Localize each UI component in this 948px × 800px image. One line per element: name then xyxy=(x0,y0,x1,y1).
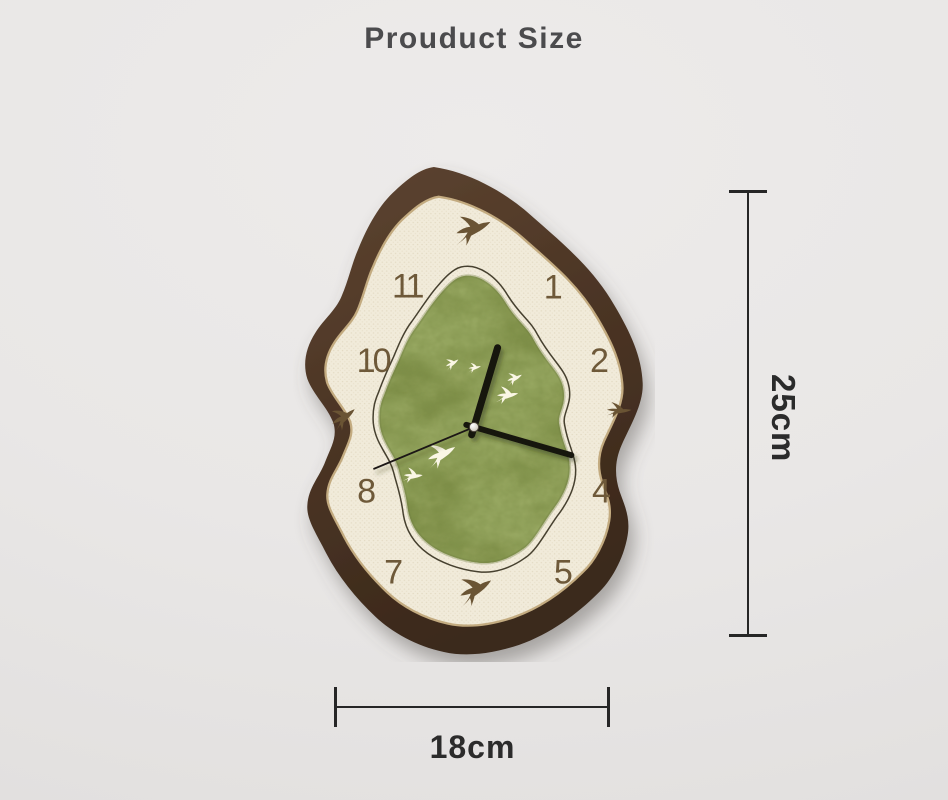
center-cap xyxy=(469,422,478,431)
clock-numeral-10: 10 xyxy=(357,342,391,380)
width-dimension-label: 18cm xyxy=(330,729,615,766)
clock-numeral-2: 2 xyxy=(590,342,609,380)
height-dimension-line xyxy=(747,192,749,636)
clock-numeral-8: 8 xyxy=(357,472,376,510)
width-dimension-cap-right xyxy=(607,687,610,727)
clock-numeral-5: 5 xyxy=(554,554,573,592)
clock-numeral-7: 7 xyxy=(384,554,403,592)
height-dimension-cap-top xyxy=(729,190,767,193)
width-dimension-cap-left xyxy=(334,687,337,727)
clock-numeral-4: 4 xyxy=(592,472,611,510)
wall-clock-image: 11 1 10 2 8 4 7 5 xyxy=(293,160,655,662)
height-dimension-label: 25cm xyxy=(764,374,802,462)
clock-numeral-11: 11 xyxy=(392,268,423,306)
clock-numeral-1: 1 xyxy=(544,269,563,307)
page-title: Prouduct Size xyxy=(0,22,948,56)
product-size-page: Prouduct Size xyxy=(0,0,948,800)
height-dimension-cap-bottom xyxy=(729,634,767,637)
width-dimension-line xyxy=(336,706,609,708)
